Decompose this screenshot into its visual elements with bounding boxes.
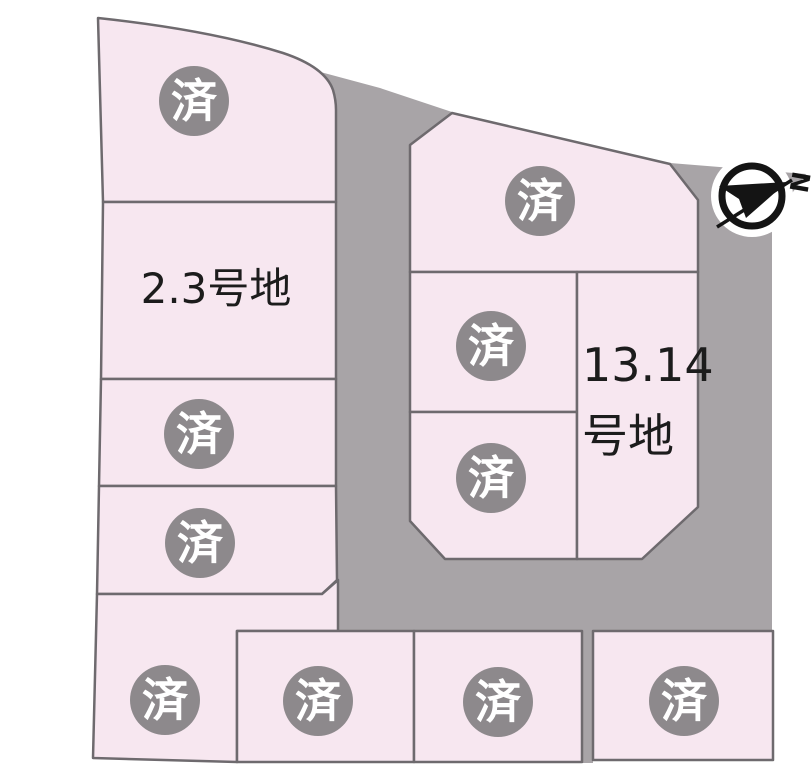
- sold-badge-label: 済: [177, 516, 224, 570]
- sold-badge: 済: [165, 508, 235, 578]
- sold-badge: 済: [164, 399, 234, 469]
- sold-badge-label: 済: [176, 407, 223, 461]
- sold-badge: 済: [283, 666, 353, 736]
- sold-badge-label: 済: [171, 74, 218, 128]
- compass: N: [711, 155, 811, 237]
- lot-2-3-label: 2.3号地: [141, 264, 292, 313]
- sold-badge: 済: [456, 443, 526, 513]
- sold-badge-label: 済: [468, 319, 515, 373]
- sold-badge-label: 済: [475, 675, 522, 729]
- sold-badge: 済: [456, 311, 526, 381]
- lot-13-14-label-line1: 13.14: [582, 338, 714, 392]
- sold-badge-label: 済: [517, 174, 564, 228]
- sold-badge-label: 済: [468, 451, 515, 505]
- sold-badge: 済: [130, 665, 200, 735]
- sold-badge-label: 済: [295, 674, 342, 728]
- lot-13-14-label-line2: 号地: [582, 409, 674, 463]
- lot-map-page: 済 済 済 済 済 済 済 済: [0, 0, 811, 768]
- sold-badge-label: 済: [661, 674, 708, 728]
- sold-badge: 済: [463, 667, 533, 737]
- sold-badge-label: 済: [142, 673, 189, 727]
- sold-badge: 済: [649, 666, 719, 736]
- sold-badge: 済: [159, 66, 229, 136]
- lot-map-canvas: 済 済 済 済 済 済 済 済: [0, 0, 811, 768]
- sold-badge: 済: [505, 166, 575, 236]
